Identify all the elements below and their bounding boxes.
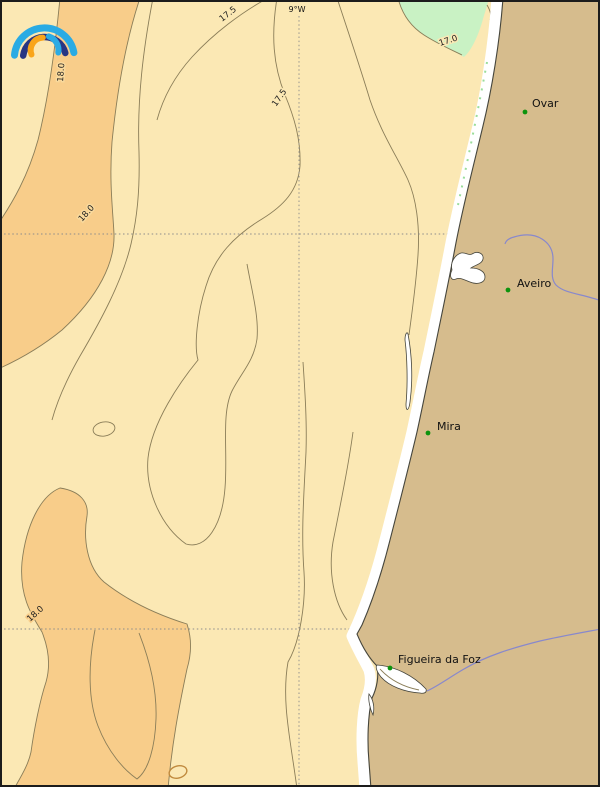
meridian-label: 9°W (289, 5, 306, 14)
city-marker-figueira-da-foz (388, 666, 393, 671)
city-label-mira: Mira (437, 420, 461, 433)
city-label-aveiro: Aveiro (517, 277, 551, 290)
city-marker-mira (426, 431, 431, 436)
map-frame: 9°W 17.5 17.5 17.0 18.0 18.0 18.0 Ovar A… (0, 0, 600, 787)
city-marker-ovar (523, 110, 528, 115)
coastal-contour-map: 9°W 17.5 17.5 17.0 18.0 18.0 18.0 Ovar A… (2, 2, 598, 785)
city-label-ovar: Ovar (532, 97, 559, 110)
city-marker-aveiro (506, 288, 511, 293)
city-label-figueira-da-foz: Figueira da Foz (398, 653, 481, 666)
contour-label-18-0-a: 18.0 (56, 63, 67, 83)
